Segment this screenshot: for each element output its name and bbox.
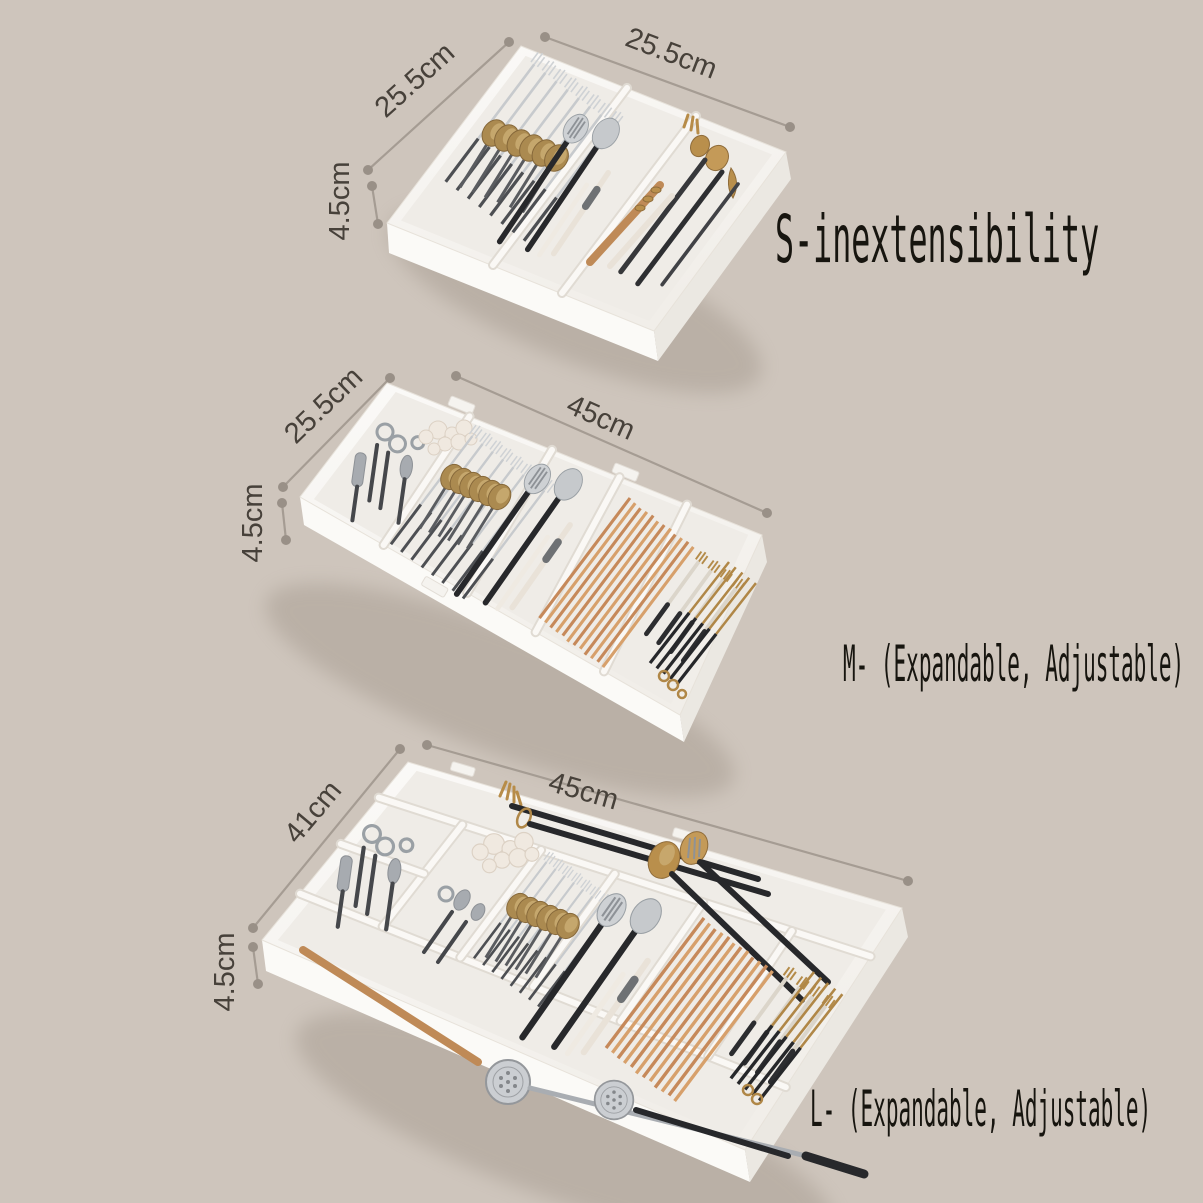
tray-m-illustration [244, 383, 767, 837]
dim-dot [248, 923, 258, 933]
dim-dot [277, 498, 287, 508]
dim-dot [248, 942, 258, 952]
dim-dot [363, 165, 373, 175]
s-width-dim-label: 25.5cm [621, 22, 721, 86]
dim-dot [422, 740, 432, 750]
dim-dot [281, 535, 291, 545]
dim-dot [278, 482, 288, 492]
s-height-dim-label: 4.5cm [324, 162, 356, 241]
m-caption: M- (Expandable, Adjustable) [843, 635, 1184, 694]
m-width-dim-label: 45cm [562, 389, 640, 447]
dim-dot [253, 979, 263, 989]
l-caption: L- (Expandable, Adjustable) [810, 1080, 1151, 1139]
dim-dot [785, 122, 795, 132]
dim-dot [367, 181, 377, 191]
expansion-tab [450, 761, 476, 776]
s-caption: S-inextensibility [775, 202, 1099, 278]
dim-line [253, 947, 258, 984]
s-depth-dim-label: 25.5cm [369, 37, 461, 124]
dim-dot [540, 32, 550, 42]
dim-dot [373, 219, 383, 229]
dim-dot [385, 373, 395, 383]
m-height-dim-label: 4.5cm [237, 484, 269, 563]
dim-dot [395, 744, 405, 754]
dim-line [372, 186, 378, 224]
dim-dot [762, 508, 772, 518]
l-height-dim-label: 4.5cm [209, 933, 241, 1012]
dim-dot [451, 371, 461, 381]
l-depth-dim-label: 41cm [278, 775, 348, 850]
dim-line [282, 503, 286, 540]
product-illustration: 25.5cm 25.5cm 4.5cm S-inextensibility [0, 0, 1203, 1203]
dim-dot [504, 37, 514, 47]
dim-dot [903, 876, 913, 886]
product-dimension-image: 25.5cm 25.5cm 4.5cm S-inextensibility [0, 0, 1203, 1203]
